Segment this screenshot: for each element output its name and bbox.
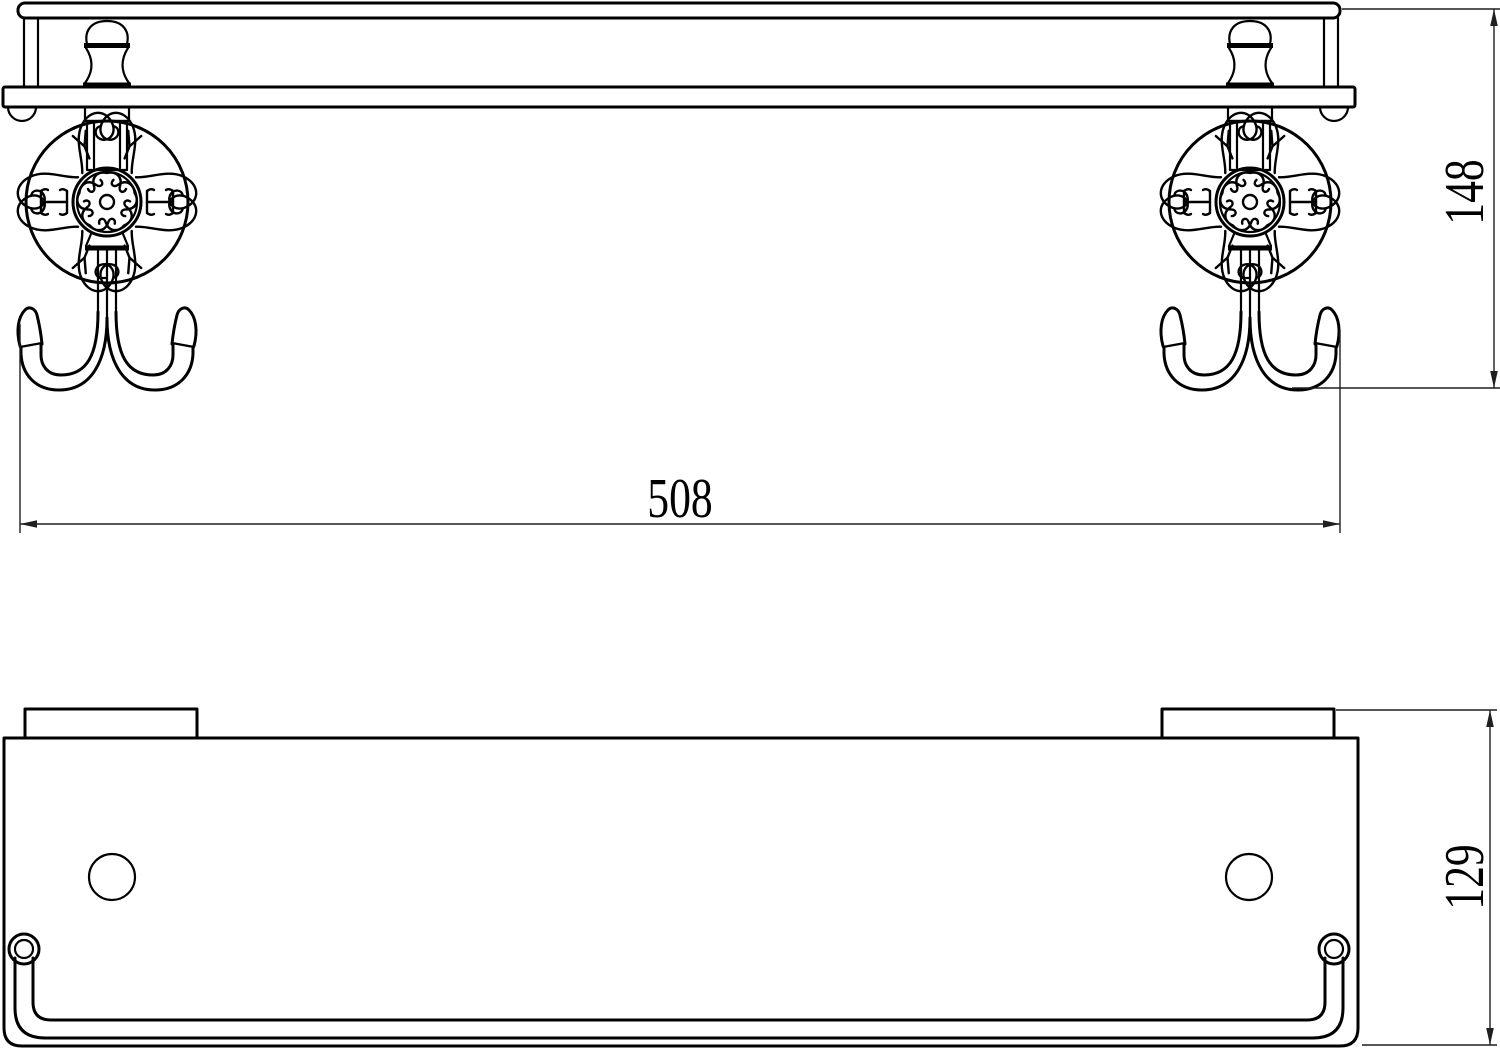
front-elevation-view (3, 3, 1355, 390)
rail-arm-left (24, 18, 38, 87)
rosette-hook-left (12, 107, 202, 390)
rosette-hook-right (1155, 107, 1345, 390)
arrowhead-bottom (1486, 1028, 1494, 1045)
arrowhead-left (20, 520, 37, 528)
arrowhead-bottom (1490, 371, 1498, 388)
rail-ball-end-left (8, 107, 36, 121)
mounting-hole-right (1226, 854, 1272, 900)
front-rail-plan (9, 934, 1349, 1038)
top-plan-view (4, 709, 1358, 1046)
technical-drawing-canvas: 508 148 129 (0, 0, 1500, 1049)
baluster-post-left (83, 21, 131, 85)
baluster-post-right (1226, 21, 1274, 85)
arrowhead-top (1486, 710, 1494, 727)
arrowhead-top (1490, 9, 1498, 26)
drawing-sheet: 508 148 129 (0, 0, 1500, 1049)
dimension-width-508: 508 (20, 324, 1340, 533)
dimension-value-height: 148 (1433, 159, 1495, 225)
shelf-plate-plan (4, 738, 1358, 1046)
wall-bracket-tab-left (25, 709, 197, 738)
mounting-hole-left (89, 854, 135, 900)
wall-bracket-tab-right (1162, 709, 1334, 738)
top-rail (18, 3, 1340, 18)
rail-arm-right (1324, 18, 1338, 87)
dimension-value-depth: 129 (1433, 844, 1495, 910)
rail-ball-end-right (1320, 107, 1348, 121)
dimension-value-width: 508 (647, 467, 713, 529)
dimension-depth-129: 129 (1336, 710, 1497, 1045)
shelf-plate-front (3, 87, 1355, 107)
arrowhead-right (1323, 520, 1340, 528)
